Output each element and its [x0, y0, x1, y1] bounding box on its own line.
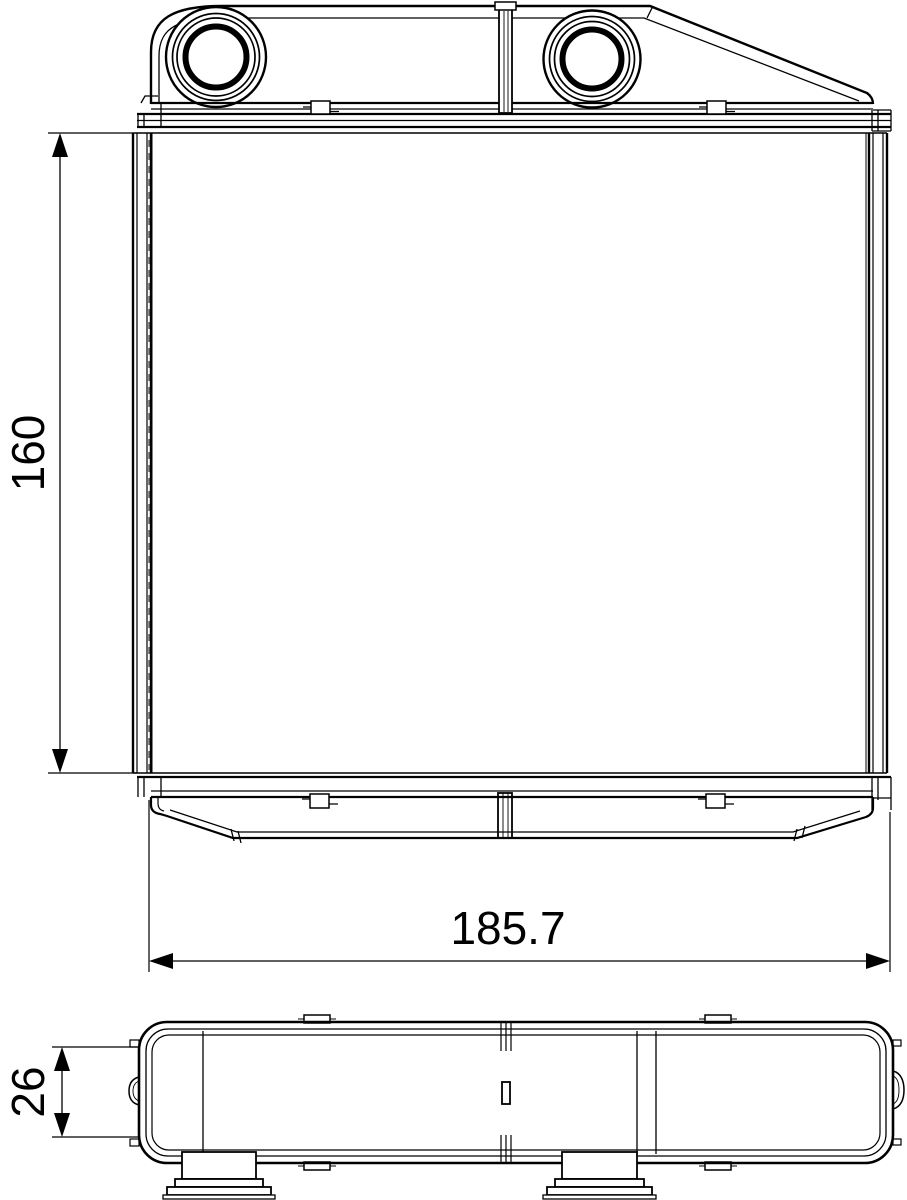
- pipe-stub-step: [555, 1179, 644, 1187]
- core-edges: [133, 133, 887, 773]
- side-partitions: [203, 1031, 656, 1154]
- pipe-stub-flange: [163, 1195, 275, 1199]
- bottom-tank-divider: [498, 793, 512, 838]
- core-side-plates-thin: [137, 133, 883, 773]
- side-right-notch: [893, 1040, 901, 1046]
- arrowhead-left: [149, 953, 173, 969]
- pipe-stub-flange: [543, 1195, 656, 1199]
- dimension-depth: 26: [2, 1047, 139, 1137]
- pipe-stub-right: [543, 1152, 656, 1199]
- side-right-notch: [893, 1139, 901, 1145]
- dim-core-height-label: 160: [2, 415, 54, 492]
- strip-cap: [495, 2, 516, 10]
- dimension-overall-width: 185.7: [149, 800, 890, 972]
- bottom-clip: [706, 794, 725, 808]
- fin-pattern: [152, 133, 866, 773]
- technical-drawing: 160 185.7 26: [0, 0, 907, 1200]
- arrowhead-down: [54, 1113, 70, 1137]
- side-outline-outer: [139, 1022, 893, 1163]
- outlet-port: [544, 11, 641, 108]
- top-clip: [707, 101, 726, 114]
- bottom-tank-inner-line: [158, 797, 860, 832]
- dimension-core-height: 160: [2, 133, 137, 773]
- inlet-port: [166, 7, 266, 107]
- arrowhead-up: [52, 133, 68, 157]
- side-left-details: [129, 1040, 139, 1146]
- bottom-tank: [151, 793, 873, 843]
- arrowhead-right: [866, 953, 890, 969]
- side-outline-inner: [152, 1035, 880, 1150]
- dim-overall-width-label: 185.7: [450, 902, 565, 954]
- bottom-clip: [310, 794, 329, 808]
- side-tab-ticks: [298, 1019, 737, 1166]
- front-view: [133, 2, 891, 843]
- extension-lines: [48, 133, 137, 773]
- bottom-header-end-caps: [138, 777, 891, 810]
- top-clip: [311, 101, 330, 114]
- side-left-notch: [130, 1139, 139, 1146]
- bottom-header-lines-bold: [137, 777, 891, 797]
- pipe-stub-step: [175, 1179, 263, 1187]
- side-view: [129, 1015, 904, 1199]
- bottom-clip-ticks: [302, 799, 734, 804]
- side-center-slot: [502, 1082, 510, 1104]
- core: [133, 133, 887, 773]
- dim-depth-label: 26: [2, 1066, 54, 1117]
- side-left-clip: [129, 1077, 139, 1105]
- tube-pattern: [152, 133, 866, 773]
- pipe-stub-body: [562, 1152, 637, 1179]
- bottom-header: [137, 777, 891, 810]
- arrowhead-down: [52, 749, 68, 773]
- pipe-stub-base: [547, 1187, 652, 1195]
- outlet-port-outer-ring: [544, 11, 641, 108]
- arrowhead-up: [54, 1047, 70, 1071]
- pipe-stub-left: [163, 1152, 275, 1199]
- side-outline-mid: [146, 1029, 886, 1156]
- side-right-details: [893, 1040, 904, 1145]
- side-left-notch: [130, 1040, 139, 1047]
- inlet-port-outer-ring: [166, 7, 266, 107]
- core-side-plates-bold: [133, 133, 887, 773]
- bottom-tank-divider-lines: [503, 793, 508, 838]
- pipe-stub-body: [182, 1152, 256, 1179]
- strip-body: [499, 9, 512, 113]
- top-header: [137, 96, 891, 131]
- center-joint-strip: [495, 2, 516, 113]
- pipe-stub-base: [167, 1187, 271, 1195]
- bottom-tank-ticks: [231, 826, 805, 843]
- top-header-lines-bold: [137, 103, 891, 127]
- side-mounting-tabs: [298, 1015, 737, 1170]
